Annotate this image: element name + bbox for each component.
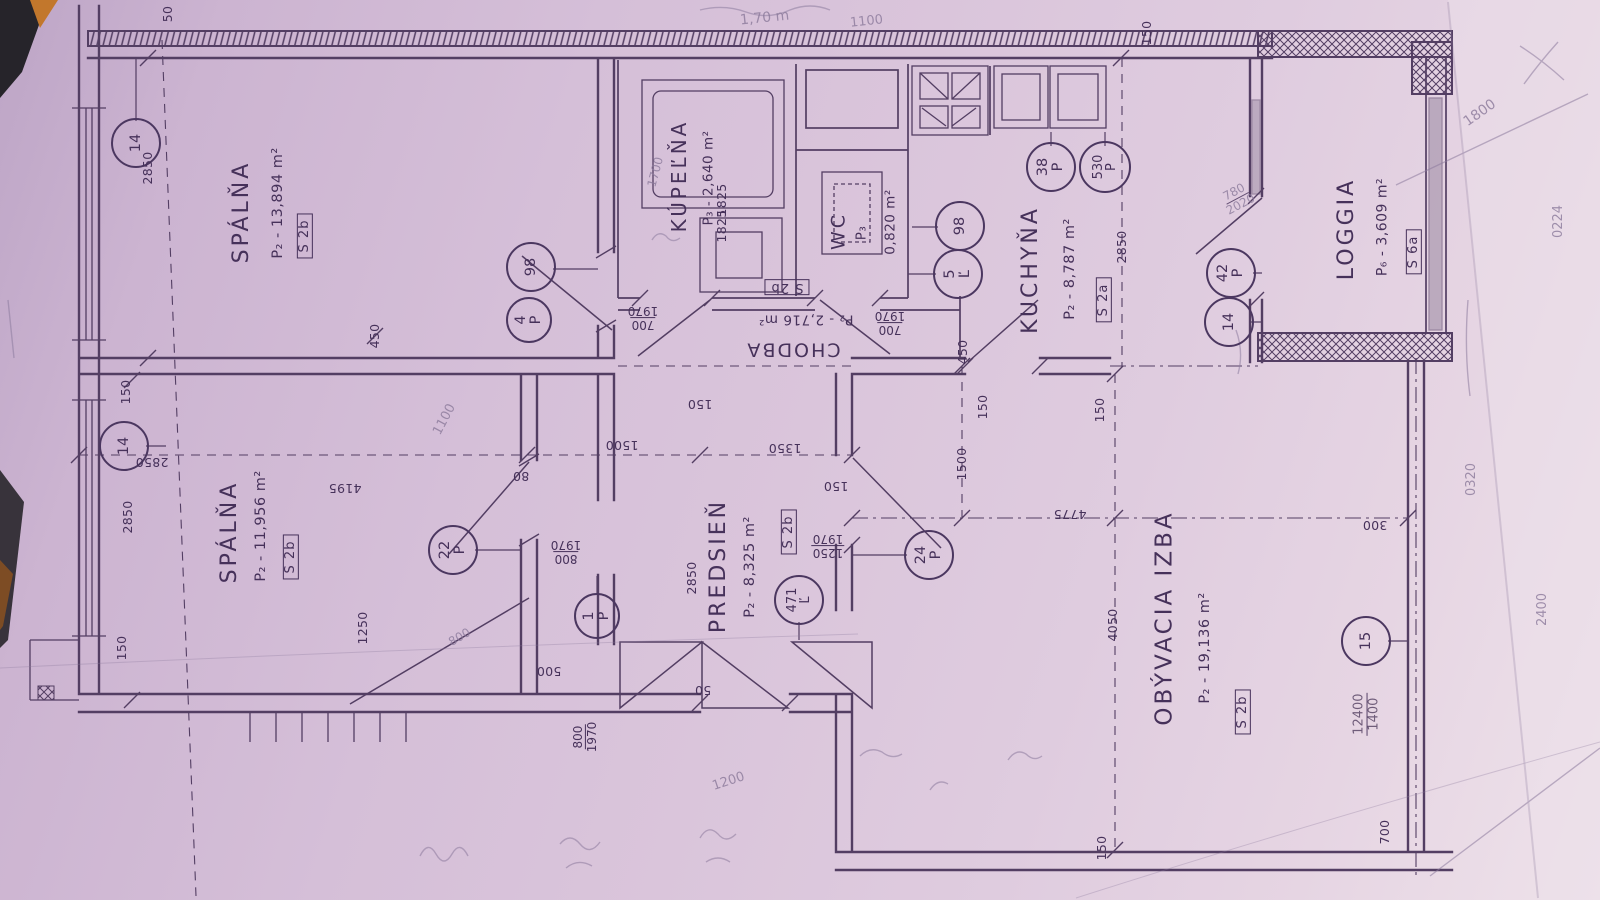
marker-letter: P (453, 546, 468, 555)
room-area-chodba: P₂ - 2,716 m² (758, 312, 853, 327)
dimension-label: 4195 (328, 481, 361, 495)
marker-value: 14 (1221, 313, 1237, 331)
position-marker: 471Ľ (774, 575, 824, 625)
position-marker: 98 (506, 242, 556, 292)
dimension-label: 1250 (356, 611, 370, 644)
marker-letter: P (529, 316, 544, 325)
dimension-label: 150 (119, 380, 133, 405)
marker-value: 1 (582, 611, 597, 620)
room-name-spalna-2: SPÁLŇA (218, 481, 242, 584)
room-name-spalna-1: SPÁLŇA (230, 161, 254, 264)
room-area-spalna-1: P₂ - 13,894 m² (271, 147, 287, 258)
position-marker: 5Ľ (933, 249, 983, 299)
room-tag-chodba: S 2b (765, 279, 810, 295)
marker-value: 4 (514, 315, 529, 324)
room-area-spalna-2: P₂ - 11,956 m² (254, 470, 270, 581)
dimension-label: 300 (1363, 518, 1388, 532)
marker-value: 98 (952, 217, 968, 235)
dimension-label: 2850 (685, 561, 699, 594)
marker-value: 530 (1092, 155, 1105, 180)
position-marker: 22P (428, 525, 478, 575)
position-marker: 1P (574, 593, 620, 639)
marker-value: 14 (116, 437, 132, 455)
dimension-label: 2850 (1115, 230, 1129, 263)
door-width: 700 (878, 323, 903, 337)
room-tag-spalna-2: S 2b (283, 535, 299, 580)
marker-letter: Ľ (958, 270, 973, 278)
door-height: 1970 (813, 533, 844, 546)
marker-value: 38 (1036, 158, 1051, 176)
pencil-annotation: 2400 (1535, 593, 1550, 626)
door-height: 1970 (586, 722, 599, 753)
position-marker: 15 (1341, 616, 1391, 666)
dimension-label: 50 (695, 683, 712, 697)
dimension-label: 500 (537, 664, 562, 678)
marker-value: 5 (943, 269, 958, 278)
room-name-chodba: CHODBA (745, 339, 840, 360)
marker-letter: P (1105, 163, 1118, 171)
marker-value: 14 (128, 134, 144, 152)
marker-value: 98 (523, 258, 539, 276)
dimension-label: 700 (1378, 820, 1392, 845)
position-marker: 98 (935, 201, 985, 251)
dimension-label: 4050 (1106, 608, 1120, 641)
dimension-label: 2850 (135, 455, 168, 469)
room-name-kuchyna: KUCHYŇA (1019, 206, 1043, 334)
door-size-label: 700 1970 (875, 310, 906, 336)
position-marker: 4P (506, 297, 552, 343)
dimension-label: 1500 (605, 438, 638, 452)
door-width: 800 (554, 552, 579, 566)
room-area-wc: 0,820 m² (884, 189, 899, 255)
room-tag-obyvacia-izba: S 2b (1235, 690, 1251, 735)
marker-letter: P (1051, 163, 1066, 172)
door-height: 1970 (628, 305, 659, 318)
position-marker: 530P (1079, 141, 1131, 193)
pencil-annotation: 0320 (1464, 463, 1479, 496)
position-marker: 38P (1026, 142, 1076, 192)
marker-letter: P (597, 612, 612, 621)
dimension-label: 150 (1095, 836, 1109, 861)
room-name-loggia: LOGGIA (1335, 178, 1359, 280)
pencil-value: 1400 (1367, 698, 1381, 731)
room-area-predsien: P₂ - 8,325 m² (743, 516, 759, 618)
position-marker: 24P (904, 530, 954, 580)
dimension-label: 150 (1140, 21, 1154, 46)
room-tag-predsien: S 2b (781, 510, 797, 555)
dimension-label: 2850 (121, 500, 135, 533)
room-tag-kuchyna: S 2a (1096, 278, 1112, 323)
room-area-obyvacia-izba: P₂ - 19,136 m² (1198, 592, 1214, 703)
dimension-label: 150 (976, 395, 990, 420)
dimension-label: 150 (1093, 398, 1107, 423)
door-size-label: 700 1970 (628, 305, 659, 331)
dimension-label: 150 (688, 397, 713, 411)
room-name-wc: WC (829, 212, 850, 250)
pencil-annotation: 12400 1400 (1353, 692, 1381, 735)
marker-letter: P (929, 551, 944, 560)
door-width: 700 (631, 318, 656, 332)
marker-value: 22 (438, 541, 453, 559)
position-marker: 42P (1206, 248, 1256, 298)
door-size-label: 800 1970 (551, 539, 582, 565)
marker-value: 42 (1216, 264, 1231, 282)
door-height: 1970 (551, 539, 582, 552)
dimension-label: 1500 (955, 447, 969, 480)
dimension-label: 450 (956, 340, 970, 365)
door-width: 800 (572, 725, 586, 750)
dimension-label: 4775 (1053, 507, 1086, 521)
room-p-wc: P₃ (855, 226, 870, 241)
room-area-loggia: P₆ - 3,609 m² (1375, 178, 1390, 276)
door-leaves (350, 198, 1262, 708)
door-size-label: 800 1970 (572, 722, 598, 753)
door-size-label: 1250 1970 (812, 533, 845, 559)
marker-value: 24 (914, 546, 929, 564)
pencil-annotation: 0224 (1551, 205, 1566, 238)
door-width: 1250 (812, 546, 845, 560)
room-name-kupelna: KÚPEĽŇA (668, 120, 690, 233)
marker-letter: Ľ (799, 596, 812, 603)
floor-plan-photo: SPÁLŇA P₂ - 13,894 m² S 2b SPÁLŇA P₂ - 1… (0, 0, 1600, 900)
position-marker: 14 (1204, 297, 1254, 347)
marker-value: 471 (786, 588, 799, 613)
door-height: 1970 (875, 310, 906, 323)
dash-dot-lines (852, 358, 1416, 880)
room-area-kuchyna: P₂ - 8,787 m² (1063, 218, 1079, 320)
dimension-label: 150 (824, 479, 849, 493)
main-walls (79, 6, 1452, 870)
marker-letter: P (1231, 269, 1246, 278)
room-tag-spalna-1: S 2b (297, 214, 313, 259)
dimension-label: 80 (513, 469, 530, 483)
room-tag-loggia: S 6a (1406, 230, 1422, 275)
dimension-label: 450 (368, 324, 382, 349)
marker-value: 15 (1358, 632, 1374, 650)
dimension-label: 2850 (141, 151, 155, 184)
room-name-predsien: PREDSIEŇ (707, 499, 731, 633)
room-name-obyvacia-izba: OBÝVACIA IZBA (1152, 510, 1177, 725)
dimension-label: 1350 (768, 441, 801, 455)
dimension-label: 150 (115, 636, 129, 661)
dimension-label: 1825 (715, 209, 729, 242)
pencil-value: 12400 (1353, 692, 1368, 735)
dimension-label: 50 (161, 6, 175, 23)
